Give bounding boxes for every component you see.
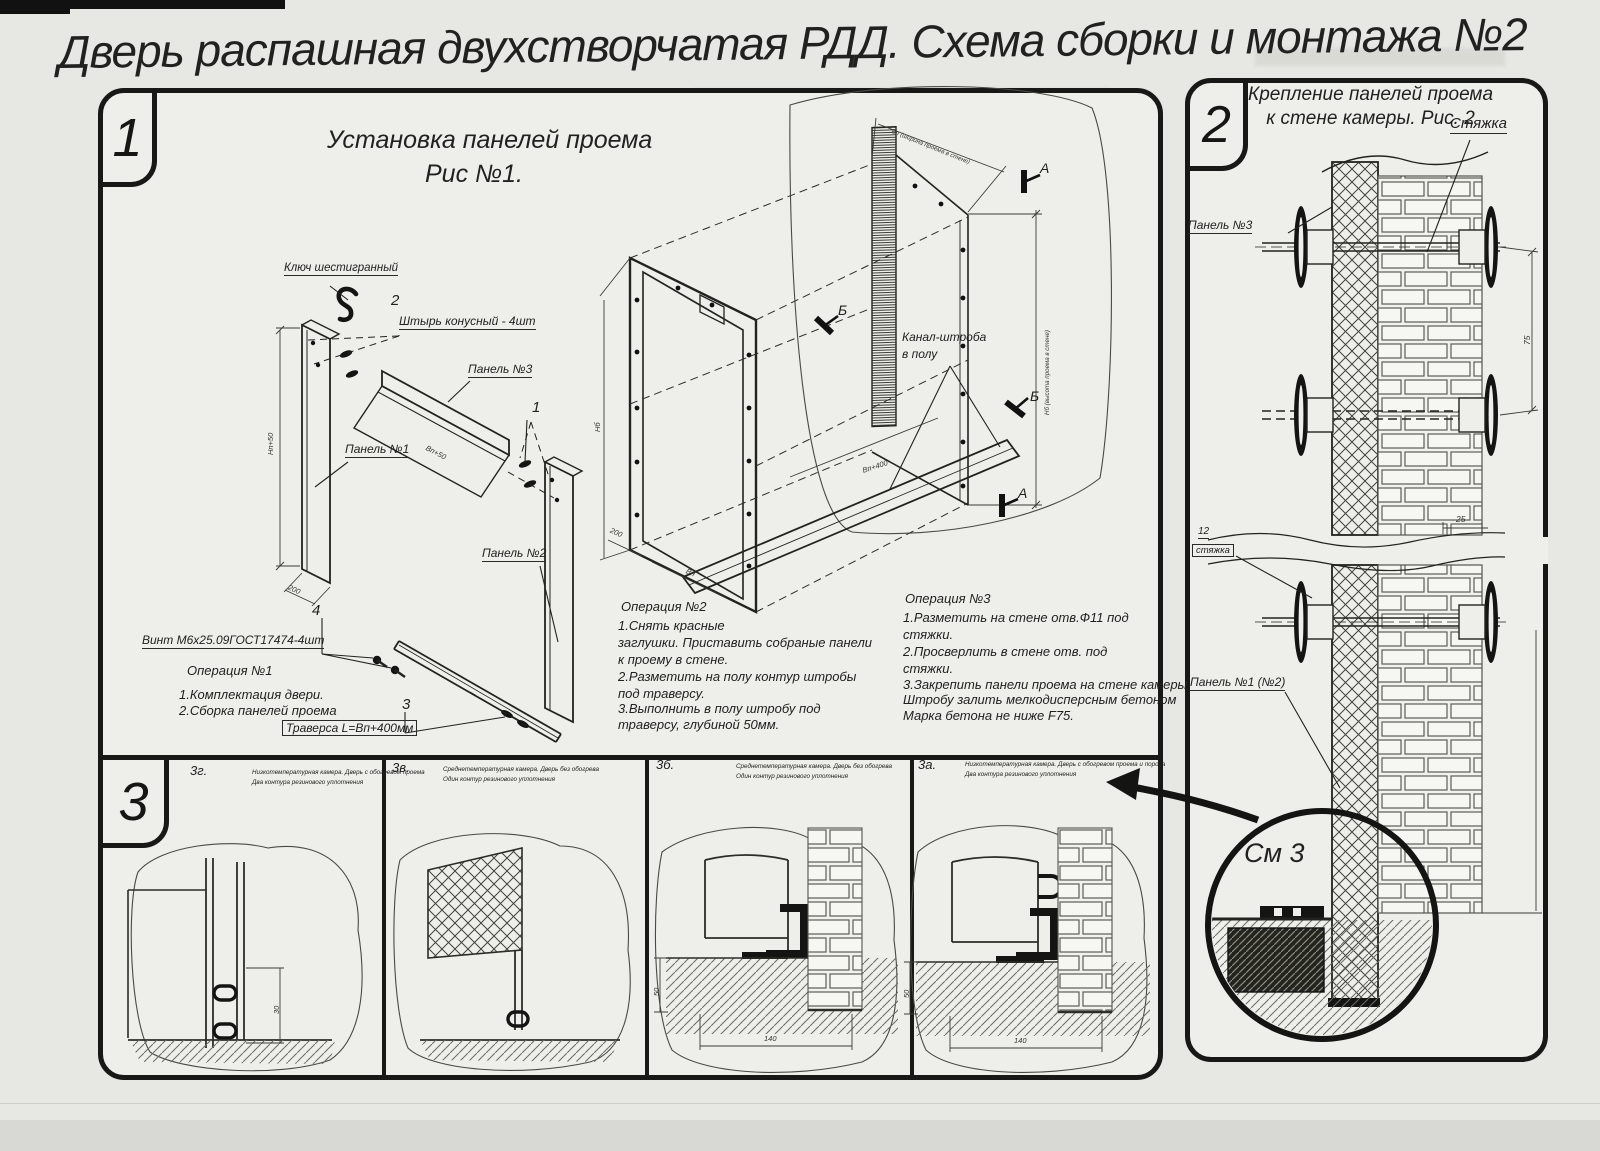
dim-label: 75: [1522, 336, 1532, 345]
operation3-line: стяжки.: [903, 660, 953, 677]
callout-tie: Стяжка: [1450, 115, 1507, 134]
callout-number-3: 3: [402, 696, 410, 713]
callout-panel1: Панель №1: [345, 442, 409, 458]
detail-3v: [394, 834, 630, 1071]
detail-desc: Низкотемпературная камера. Дверь с обогр…: [965, 760, 1165, 770]
section-marker-B: Б: [838, 302, 847, 318]
operation2-line: заглушки. Приставить собраные панели: [618, 634, 872, 651]
operation3-line: Марка бетона не ниже F75.: [903, 707, 1074, 724]
frame-holes: [635, 286, 752, 569]
detail-arrow-head: [1106, 768, 1140, 800]
callout-panel3: Панель №3: [468, 362, 532, 378]
screws: [373, 656, 405, 677]
dim-label: 140: [764, 1034, 777, 1043]
detail-desc: Среднетемпературная камера. Дверь без об…: [736, 762, 892, 772]
frame-inner: [643, 272, 743, 599]
detail-desc: Один контур резинового уплотнения: [736, 772, 848, 782]
operation2-line: 2.Разметить на полу контур штробы: [618, 668, 856, 685]
dim-label: 50: [902, 990, 911, 998]
callout-number-1: 1: [532, 399, 540, 416]
callout-panel2: Панель №2: [482, 546, 546, 562]
operation2-line: к проему в стене.: [618, 651, 728, 668]
traverse-bar: [394, 641, 561, 742]
callout-number-4: 4: [312, 602, 320, 619]
section1-heading-fig: Рис №1.: [425, 160, 523, 189]
detail-3a: [904, 826, 1150, 1073]
operation2-line: траверсу, глубиной 50мм.: [618, 716, 779, 733]
operation3-line: Штробу залить мелкодисперсным бетоном: [903, 691, 1176, 708]
detail-3g: [128, 844, 362, 1071]
callout-hex-key: Ключ шестигранный: [284, 262, 398, 276]
floor-detail: [1208, 906, 1438, 1040]
frame-outer: [630, 258, 756, 612]
section-marker-A: А: [1040, 160, 1049, 176]
insulation-strip: [1332, 162, 1378, 535]
detail-reference-see3: См 3: [1244, 838, 1305, 869]
dim-label: 30: [272, 1006, 281, 1014]
section2-heading: Крепление панелей проема: [1248, 84, 1493, 106]
dim-label: 25: [1456, 514, 1465, 524]
detail-label-3v: 3в.: [392, 760, 410, 775]
operation3-line: 2.Просверлить в стене отв. под: [903, 643, 1107, 660]
callout-traverse: Траверса L=Вп+400мм: [282, 720, 417, 736]
wall-section-view: [1106, 140, 1548, 1040]
panel2-plank: [545, 462, 573, 722]
operation1-line: 1.Комплектация двери.: [179, 686, 324, 703]
section-marker-A: А: [1018, 485, 1027, 501]
callout-canal-line2: в полу: [902, 347, 937, 361]
operation1-line: 2.Сборка панелей проема: [179, 702, 337, 719]
callout-screw: Винт М6х25.09ГОСТ17474-4шт: [142, 633, 324, 649]
detail-arrow: [1132, 787, 1258, 820]
detail-label-3b: 3б.: [656, 757, 674, 772]
dim-label: 50: [652, 988, 661, 996]
callout-pin: Штырь конусный - 4шт: [399, 314, 536, 330]
detail-desc: Среднетемпературная камера. Дверь без об…: [443, 765, 599, 775]
dim-lines: [276, 326, 938, 606]
detail-desc: Два контура резинового уплотнения: [252, 778, 363, 788]
scanned-drawing-page: { "title": "Дверь распашная двухстворчат…: [0, 0, 1600, 1151]
hex-key-icon: [339, 289, 356, 320]
assembled-view: [600, 87, 1111, 612]
operation3-title: Операция №3: [905, 590, 990, 607]
detail-desc: Два контура резинового уплотнения: [965, 770, 1076, 780]
detail-desc: Один контур резинового уплотнения: [443, 775, 555, 785]
callout-panel12: Панель №1 (№2): [1190, 675, 1285, 691]
callout-tie-word: стяжка: [1192, 544, 1234, 557]
detail-label-3a: 3а.: [918, 757, 936, 772]
operation3-line: 1.Разметить на стене отв.Ф11 под: [903, 609, 1129, 626]
operation2-line: 1.Снять красные: [618, 617, 725, 634]
operation3-line: стяжки.: [903, 626, 953, 643]
callout-panel3-sec2: Панель №3: [1188, 218, 1252, 234]
operation2-title: Операция №2: [621, 598, 706, 615]
detail-label-3g: 3г.: [190, 763, 207, 778]
operation2-line: 3.Выполнить в полу штробу под: [618, 700, 821, 717]
section1-heading: Установка панелей проема: [327, 126, 652, 155]
opening-hatched-edge: [872, 127, 896, 427]
dim-label: 140: [1014, 1036, 1027, 1045]
dim-label: Нб: [593, 422, 602, 432]
callout-number-2: 2: [391, 292, 399, 309]
callout-tie-number: 12: [1198, 526, 1209, 539]
dim-label: Нп+50: [266, 433, 275, 455]
drawing-linework: [0, 0, 1600, 1151]
callout-canal-line1: Канал-штроба: [902, 330, 986, 344]
dim-label: Нб (высота проема в стене): [1044, 330, 1051, 415]
projection-lines: [630, 164, 968, 612]
operation1-title: Операция №1: [187, 662, 272, 679]
section-marker-B: Б: [1030, 388, 1039, 404]
